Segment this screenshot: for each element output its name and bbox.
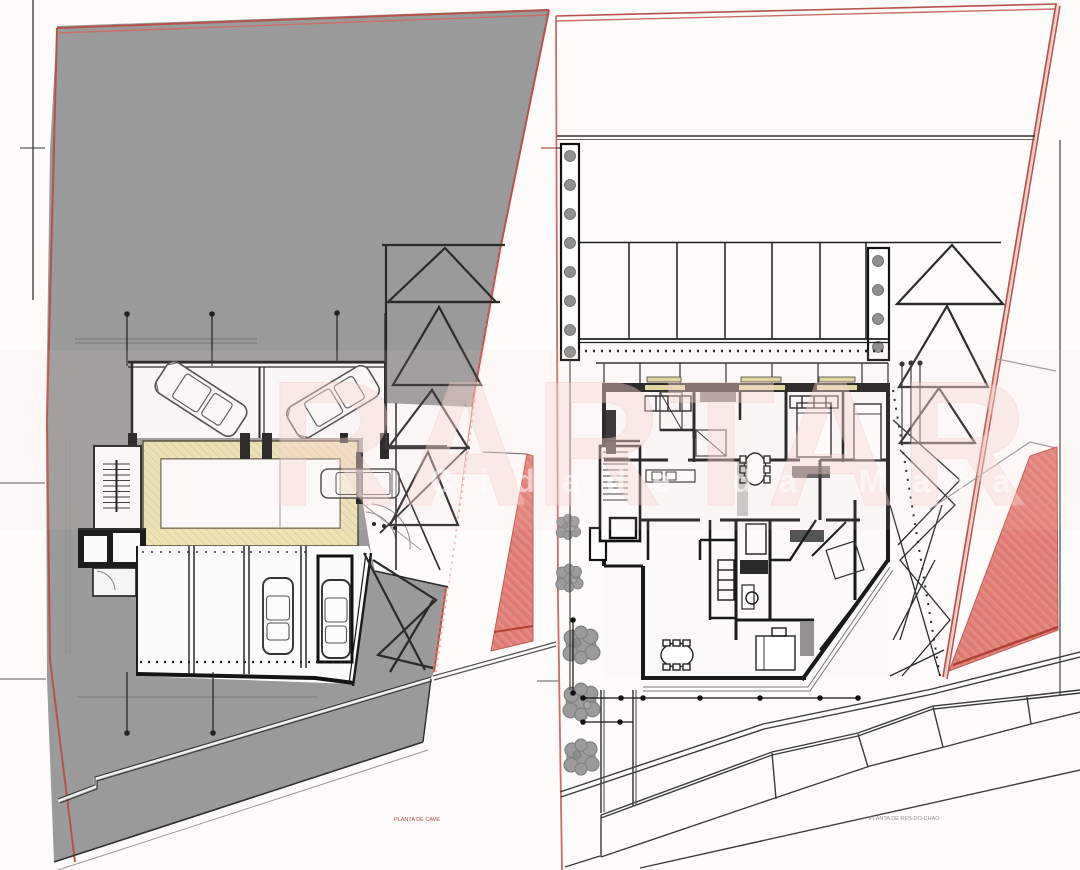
svg-text:PLANTA DE RES-DO-CHAO: PLANTA DE RES-DO-CHAO	[869, 816, 940, 822]
svg-text:PLANTA DE CAVE: PLANTA DE CAVE	[394, 817, 440, 823]
svg-text:RARTAR: RARTAR	[268, 344, 1028, 543]
